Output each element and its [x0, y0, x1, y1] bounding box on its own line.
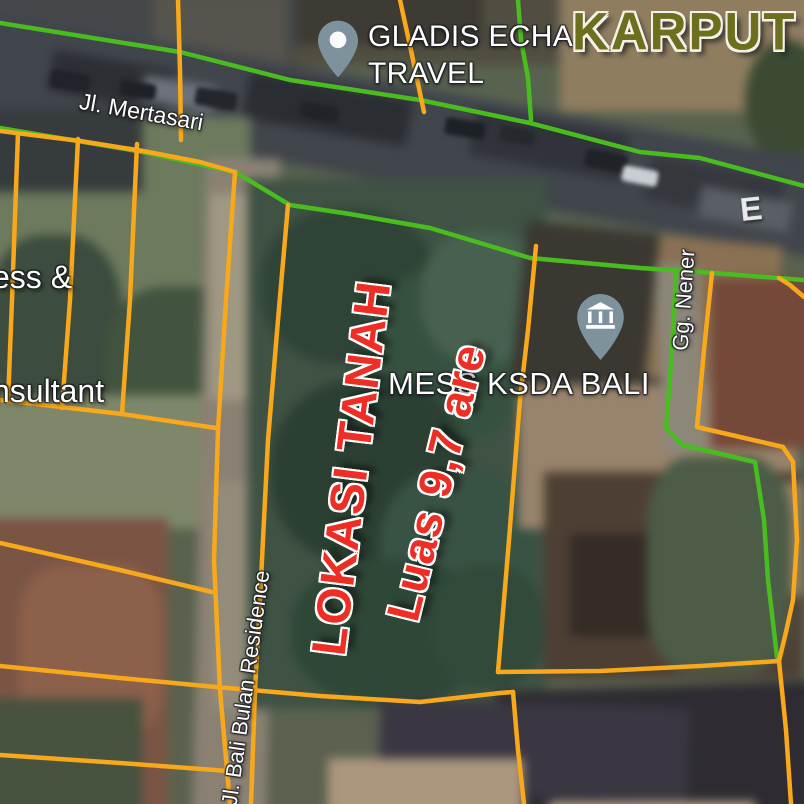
map-canvas[interactable]: GLADIS ECHA TRAVEL Jl. Mertasari MESS KS… [0, 0, 804, 804]
parcel-line [498, 661, 779, 672]
parcel-line [251, 205, 288, 804]
parcel-line [697, 273, 783, 447]
gladis-echa-travel-label[interactable]: GLADIS ECHA TRAVEL [368, 18, 573, 92]
watermark-fragment-line1: ess & [0, 258, 104, 296]
parcel-line [122, 144, 137, 414]
parcel-line [498, 246, 536, 672]
watermark-left-fragment: ess & nsultant [0, 182, 104, 486]
parcel-line [513, 692, 524, 804]
parcel-line [0, 543, 212, 592]
mess-ksda-bali-pin[interactable] [577, 294, 624, 360]
road-marking-e: E [738, 189, 764, 229]
poi-label-mess-ksda-bali[interactable]: MESS KSDA BALI [388, 366, 650, 402]
gladis-label-line1: GLADIS ECHA [368, 18, 573, 55]
watermark-karput: KARPUT [572, 1, 797, 62]
gladis-label-line2: TRAVEL [368, 55, 573, 92]
parcel-line [0, 755, 228, 771]
watermark-fragment-line2: nsultant [0, 372, 104, 410]
parcel-line [779, 447, 797, 661]
parcel-line [779, 661, 791, 804]
gladis-echa-travel-pin[interactable] [318, 20, 358, 78]
